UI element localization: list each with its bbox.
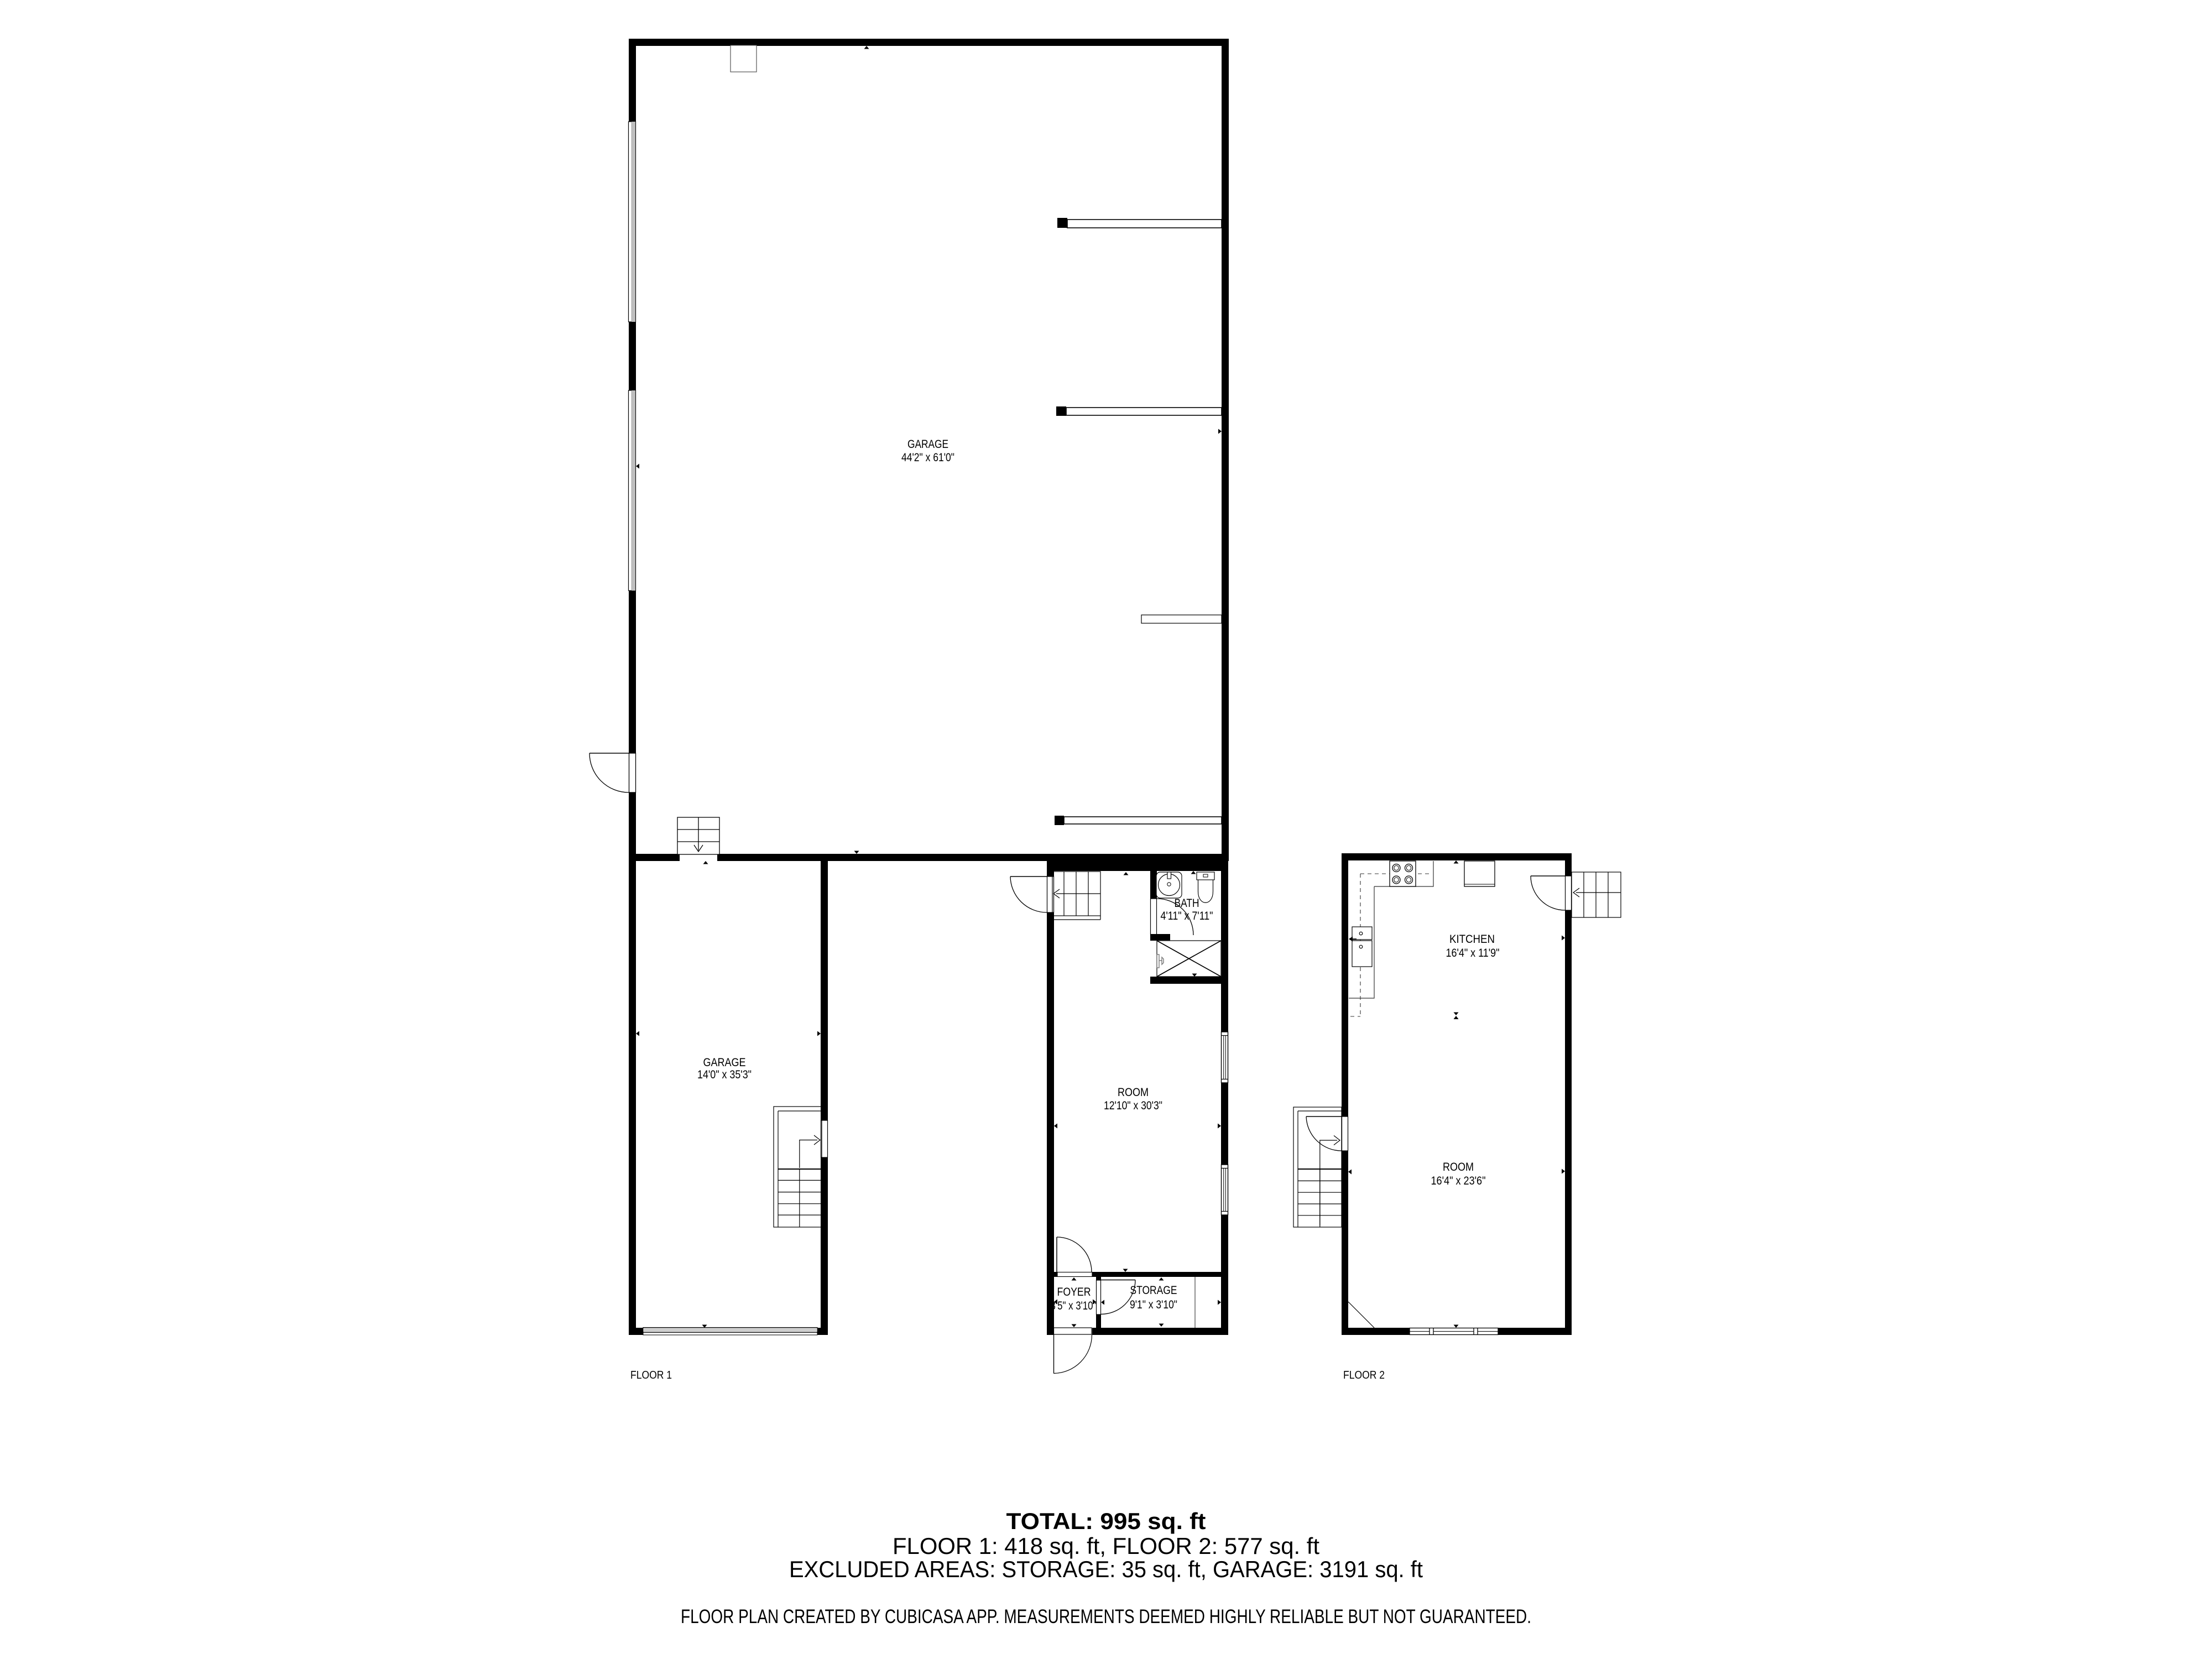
svg-text:STORAGE: STORAGE [1130, 1284, 1177, 1297]
svg-text:ROOM: ROOM [1118, 1086, 1149, 1099]
svg-text:3'5" x 3'10": 3'5" x 3'10" [1051, 1300, 1097, 1312]
svg-text:14'0" x 35'3": 14'0" x 35'3" [697, 1068, 752, 1081]
svg-text:9'1" x 3'10": 9'1" x 3'10" [1130, 1298, 1177, 1311]
svg-text:16'4" x 11'9": 16'4" x 11'9" [1446, 947, 1500, 959]
svg-text:FLOOR 1: FLOOR 1 [630, 1369, 672, 1381]
svg-text:FOYER: FOYER [1057, 1286, 1091, 1298]
svg-text:4'11" x 7'11": 4'11" x 7'11" [1161, 910, 1213, 922]
svg-text:GARAGE: GARAGE [703, 1056, 746, 1069]
svg-text:TOTAL: 995 sq. ft: TOTAL: 995 sq. ft [1006, 1508, 1206, 1534]
svg-text:FLOOR 1: 418 sq. ft, FLOOR 2:: FLOOR 1: 418 sq. ft, FLOOR 2: 577 sq. ft [893, 1533, 1319, 1559]
svg-text:12'10" x 30'3": 12'10" x 30'3" [1104, 1099, 1162, 1112]
svg-text:ROOM: ROOM [1443, 1161, 1474, 1173]
svg-text:EXCLUDED AREAS: STORAGE: 35 sq: EXCLUDED AREAS: STORAGE: 35 sq. ft, GARA… [789, 1556, 1423, 1582]
svg-text:44'2" x 61'0": 44'2" x 61'0" [901, 451, 954, 464]
svg-text:FLOOR PLAN CREATED BY CUBICASA: FLOOR PLAN CREATED BY CUBICASA APP. MEAS… [681, 1606, 1531, 1627]
svg-text:KITCHEN: KITCHEN [1449, 933, 1495, 946]
svg-text:16'4" x 23'6": 16'4" x 23'6" [1431, 1175, 1486, 1187]
svg-text:BATH: BATH [1175, 897, 1199, 910]
svg-text:FLOOR 2: FLOOR 2 [1343, 1369, 1385, 1381]
svg-text:GARAGE: GARAGE [907, 438, 948, 451]
